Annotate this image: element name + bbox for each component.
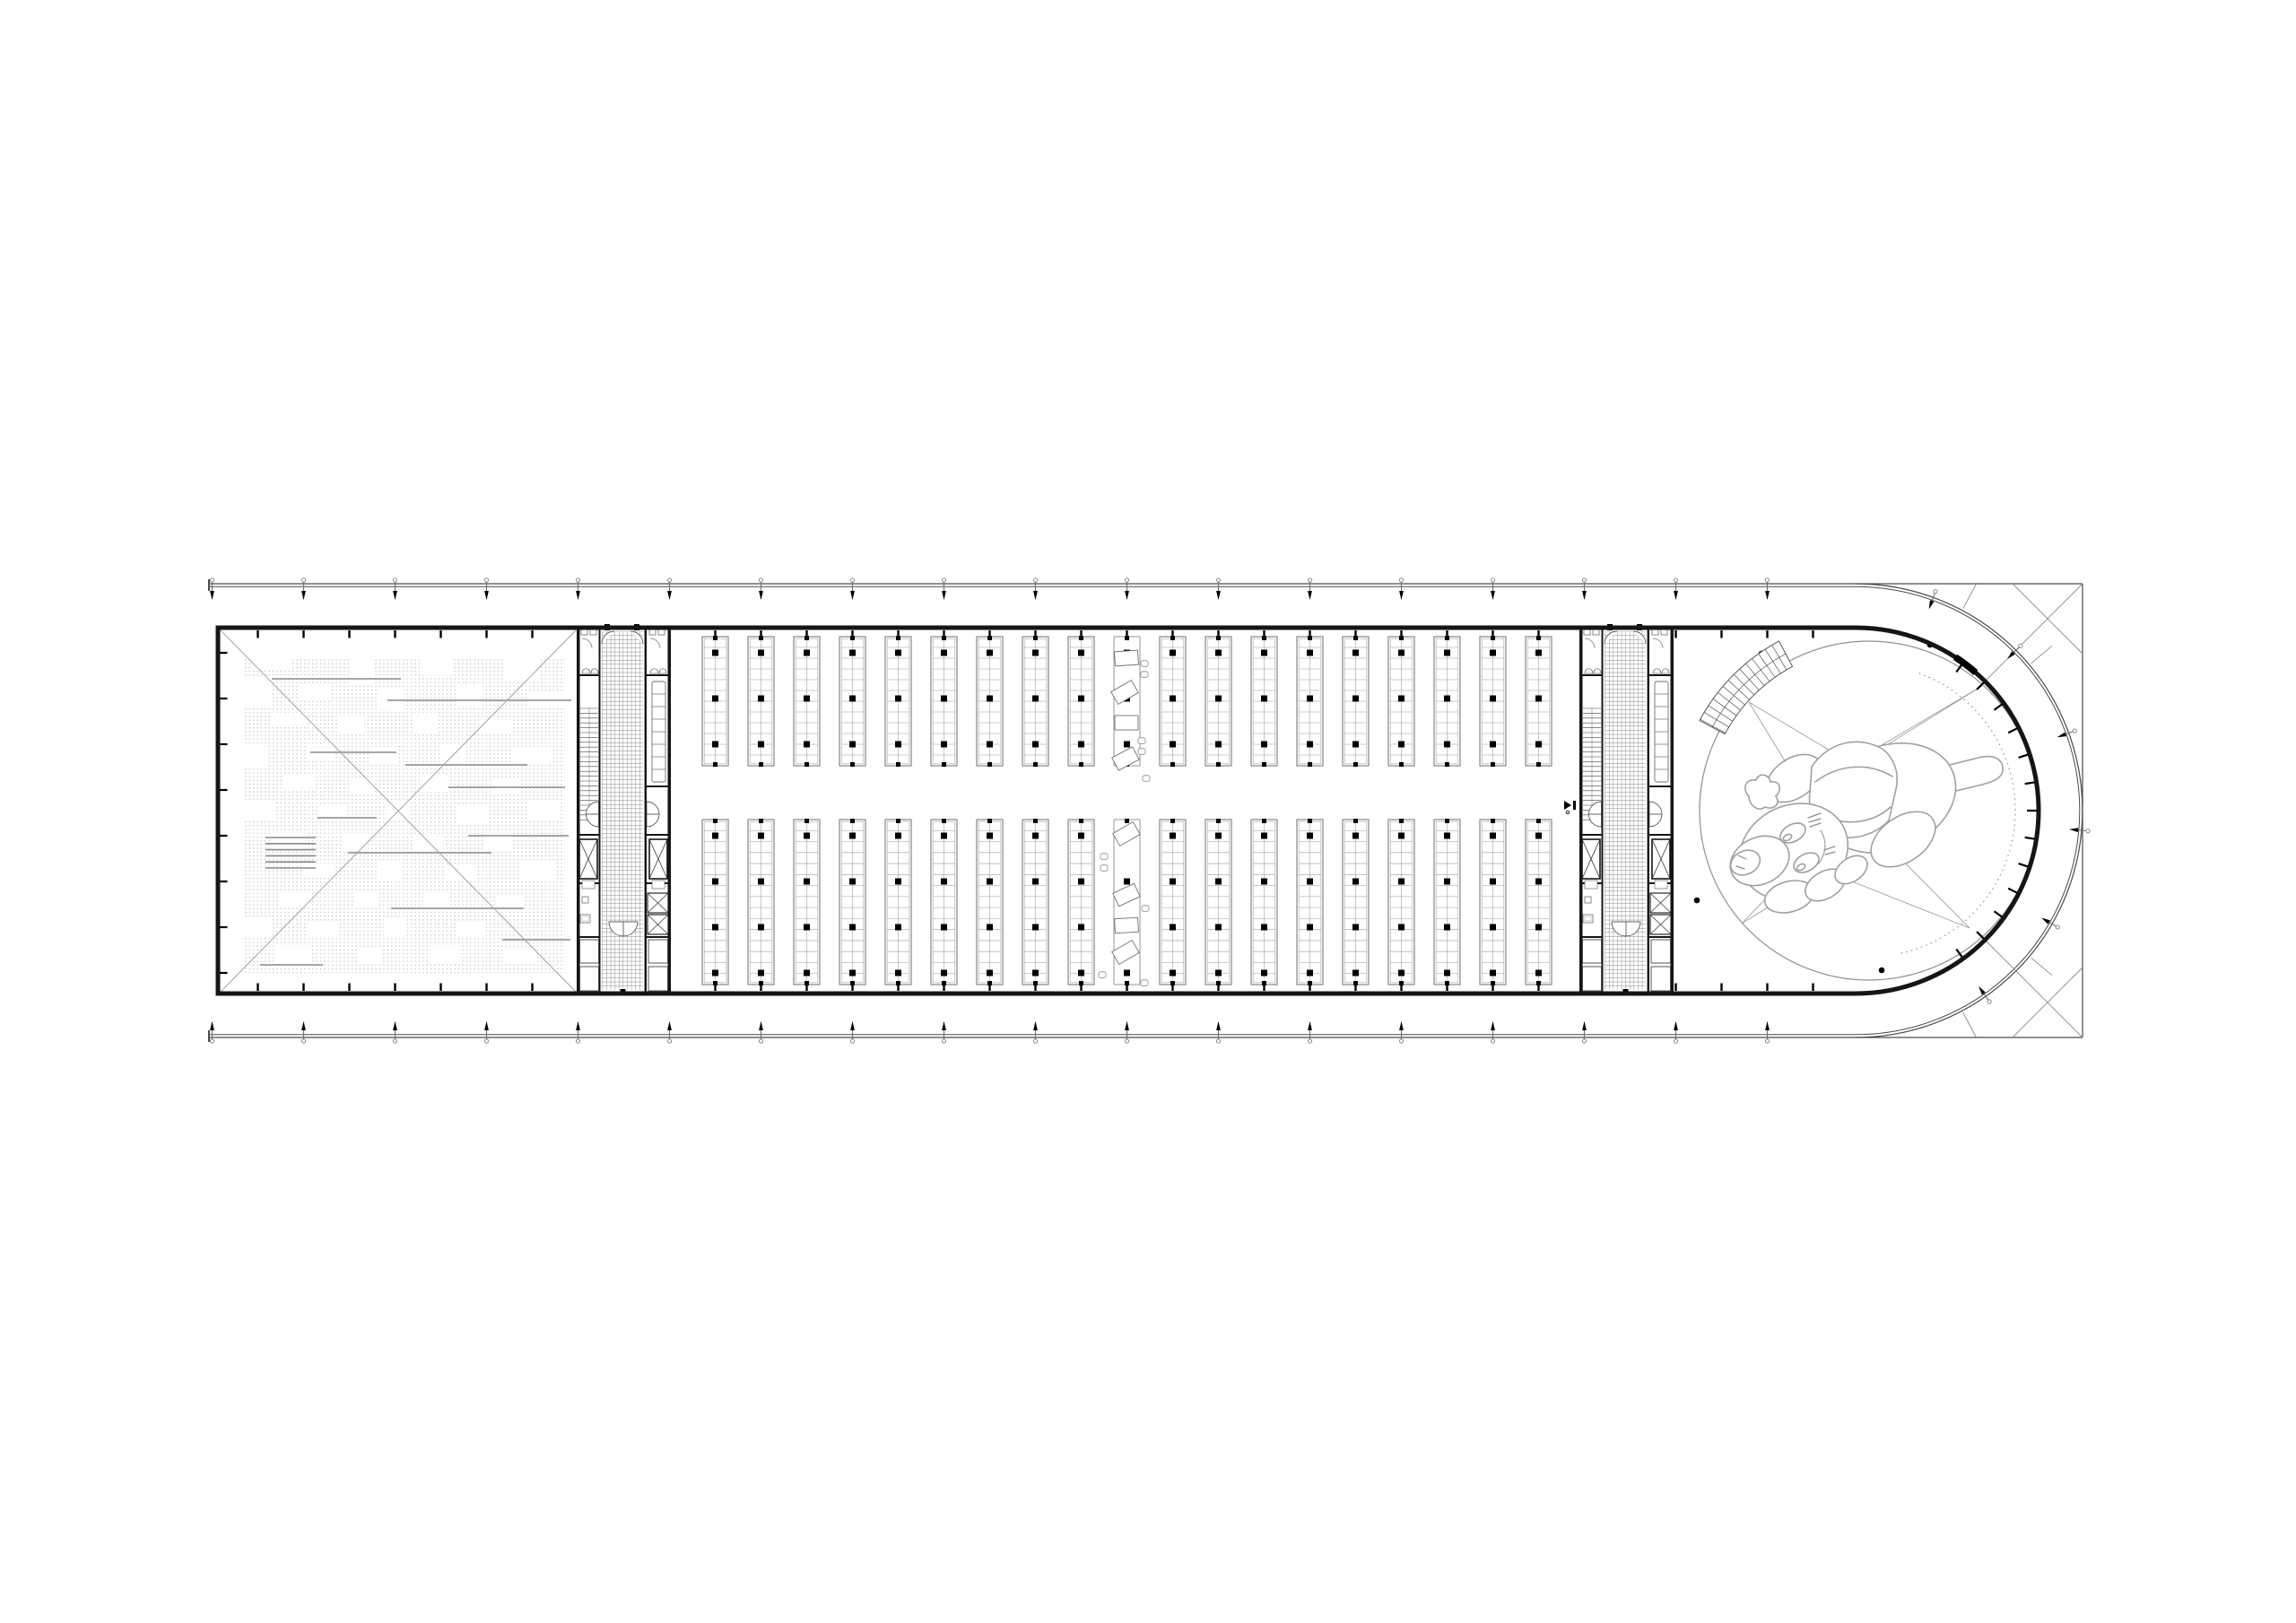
reading-strip xyxy=(1099,636,1150,985)
core-b xyxy=(1579,624,1674,995)
core-a xyxy=(577,624,671,995)
table xyxy=(1115,716,1138,730)
chair xyxy=(1099,972,1106,978)
chair xyxy=(1141,980,1148,986)
misc-glyphs xyxy=(1564,801,1576,814)
chair xyxy=(1138,749,1145,755)
chair xyxy=(1141,672,1148,678)
rotunda xyxy=(1694,641,2039,980)
chair xyxy=(1141,661,1148,667)
chair xyxy=(1143,776,1150,782)
chair xyxy=(1100,865,1108,872)
table xyxy=(1114,650,1138,666)
multipurpose-room xyxy=(221,630,576,992)
table xyxy=(1115,917,1139,933)
chair xyxy=(1100,854,1108,860)
plan-svg xyxy=(0,0,2296,1623)
floor-plan-sheet xyxy=(0,0,2296,1623)
chair xyxy=(1142,906,1149,912)
chair xyxy=(1138,738,1145,744)
